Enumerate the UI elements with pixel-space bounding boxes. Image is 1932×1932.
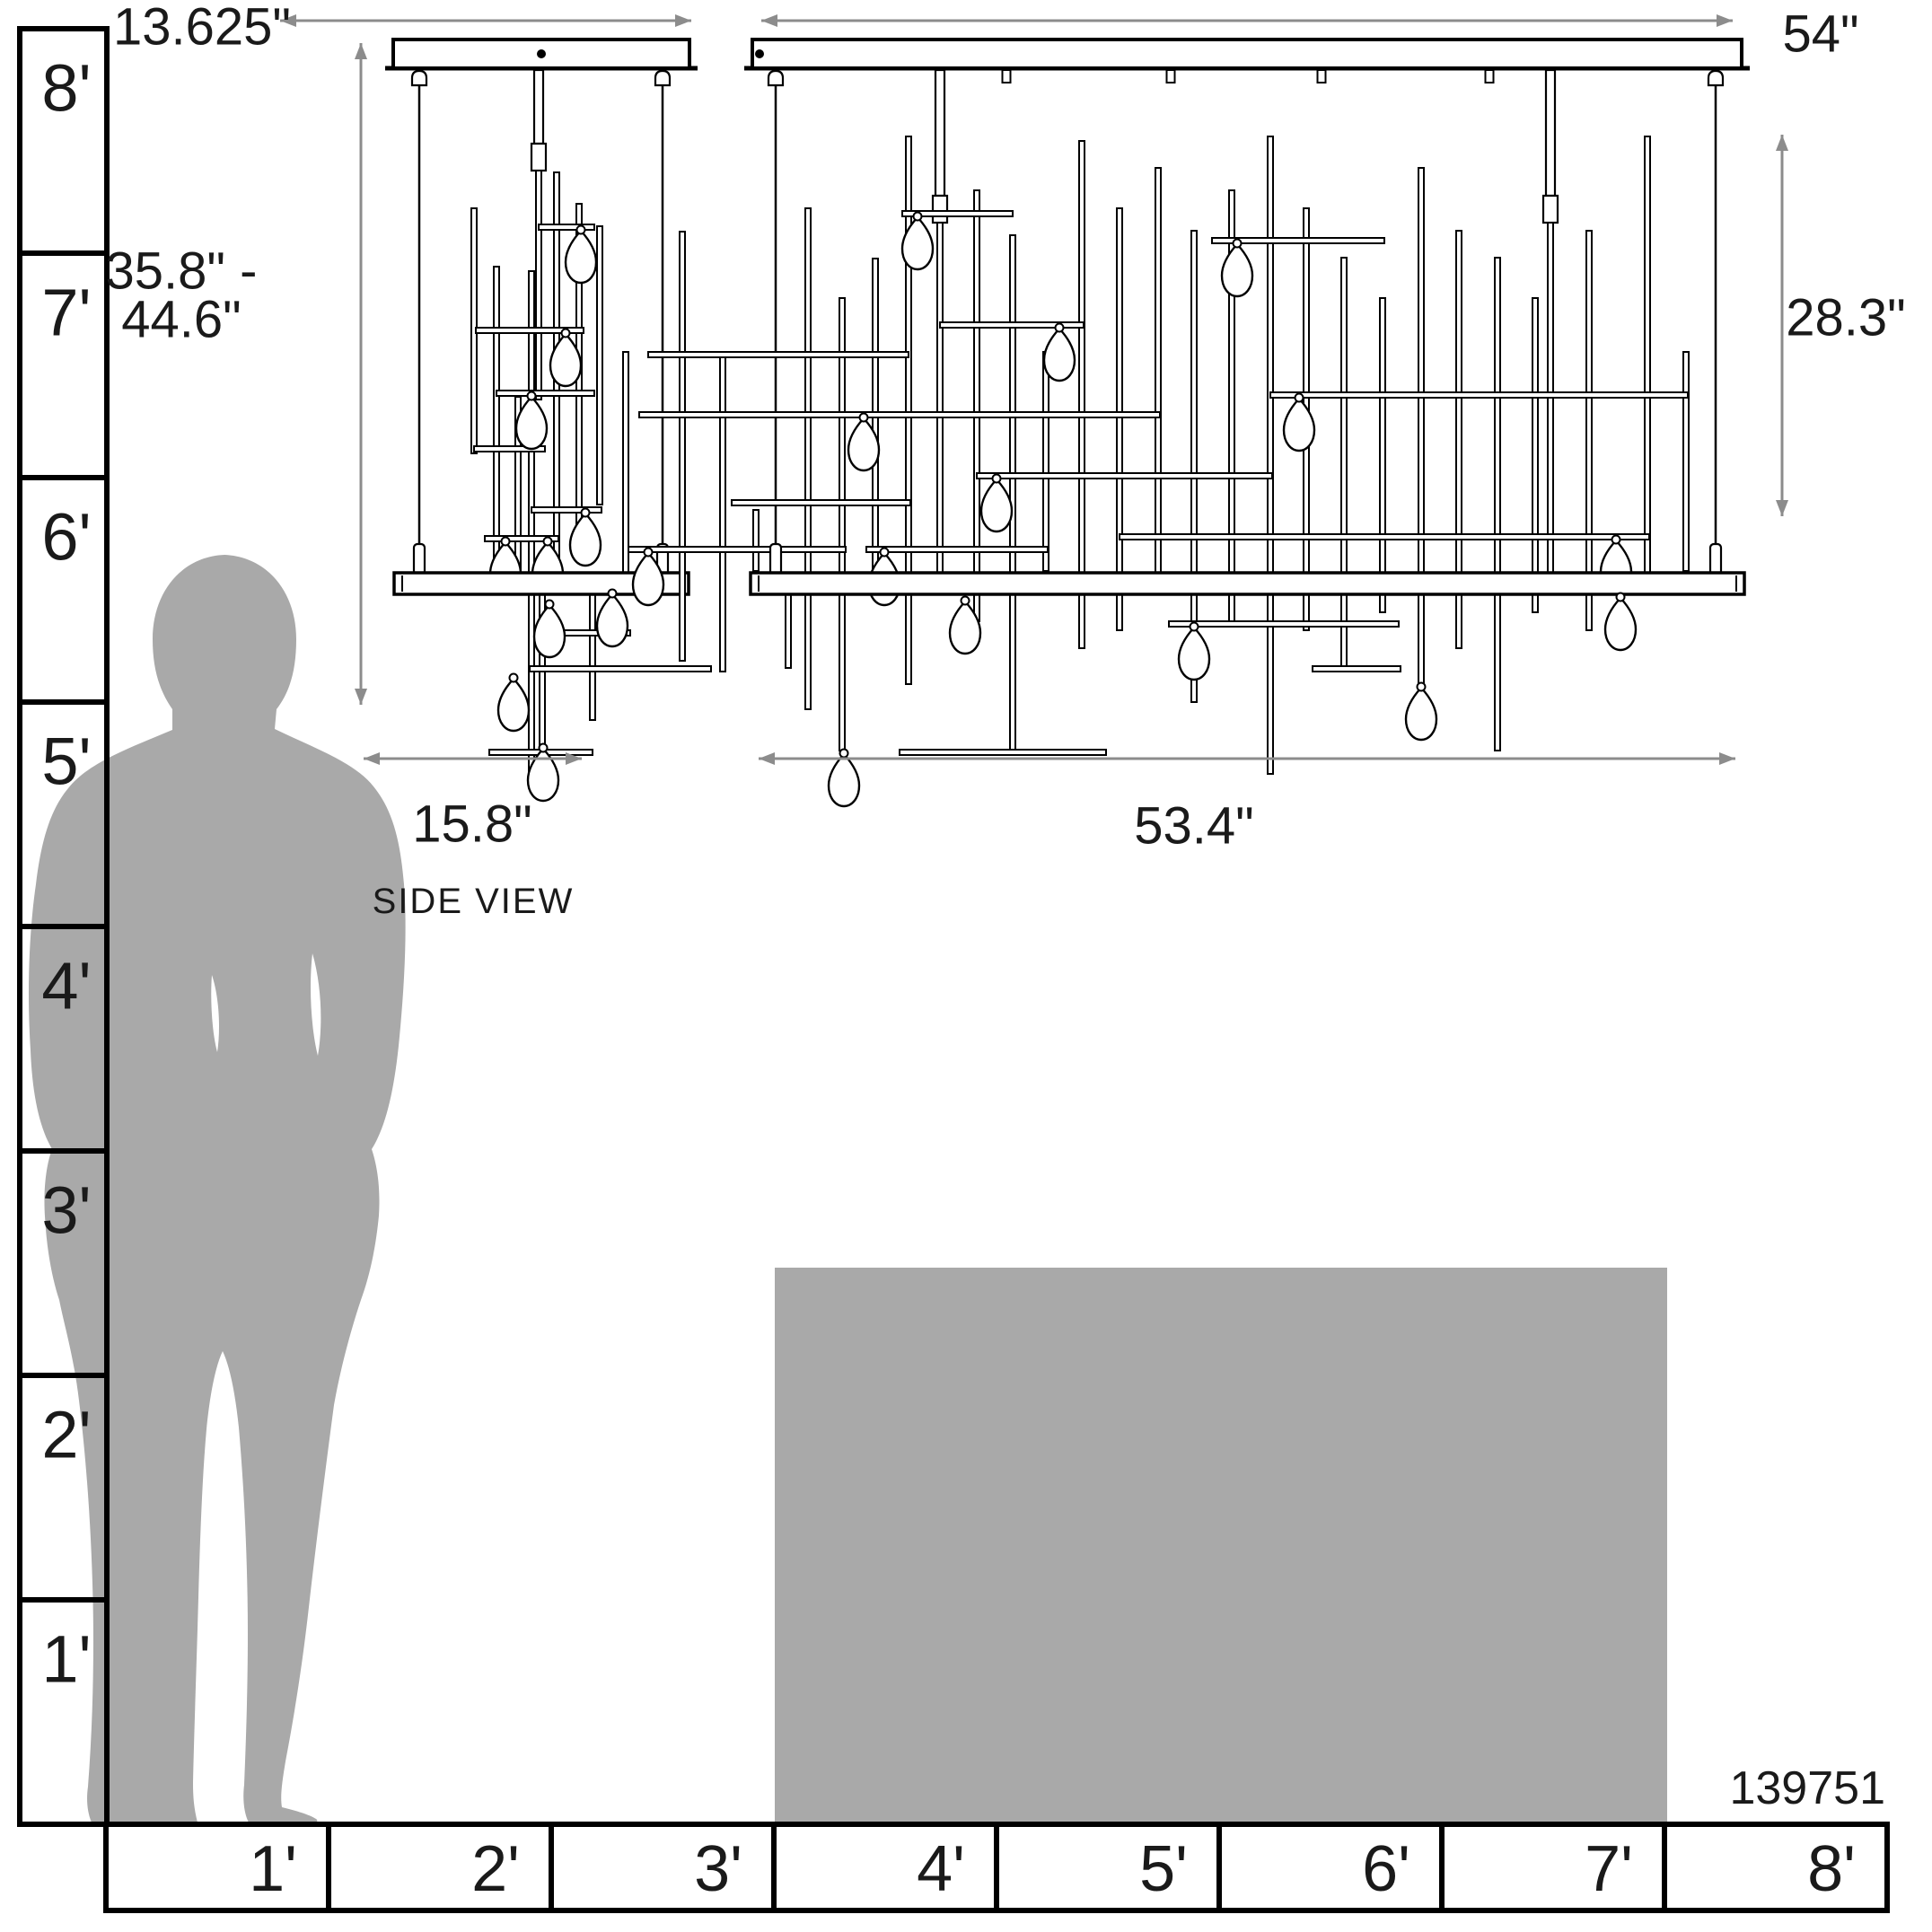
fixture-front-view <box>628 40 1750 806</box>
h-ruler-tick-label: 7' <box>1585 1833 1633 1905</box>
fixture-rod-vertical <box>1495 258 1500 751</box>
v-ruler-tick-label: 6' <box>41 500 91 575</box>
h-ruler-tick-label: 8' <box>1807 1833 1856 1905</box>
canopy-screw-dot <box>755 49 764 58</box>
diagram-canvas: 8'7'6'5'4'3'2'1' 1'2'3'4'5'6'7'8' 13.625… <box>0 0 1932 1932</box>
h-ruler-tick-label: 2' <box>471 1833 520 1905</box>
fixture-rod-vertical <box>786 594 791 668</box>
h-ruler-tick-label: 1' <box>249 1833 297 1905</box>
fixture-rod-vertical <box>1010 235 1015 751</box>
fixture-rod-vertical <box>805 208 811 709</box>
label-body-height: 28.3" <box>1786 289 1905 347</box>
horizontal-ruler: 1'2'3'4'5'6'7'8' <box>106 1824 1887 1910</box>
bulb-icon <box>1406 688 1436 740</box>
fixture-rod-horizontal <box>530 666 711 672</box>
fixture-rod-horizontal <box>732 500 910 505</box>
table-rect <box>775 1268 1667 1824</box>
v-ruler-tick-label: 2' <box>41 1398 91 1472</box>
bulb-icon <box>1222 244 1252 296</box>
fixture-rod-vertical <box>1532 298 1538 612</box>
fixture-rod-vertical <box>753 510 759 571</box>
fixture-rod-vertical <box>873 259 878 585</box>
fixture-rod-horizontal <box>1169 621 1399 627</box>
table-block <box>775 1268 1667 1824</box>
wire-post <box>770 544 781 575</box>
h-ruler-tick-label: 4' <box>917 1833 965 1905</box>
label-canopy-side-width: 13.625" <box>113 0 291 57</box>
fixture-rod-horizontal <box>1313 666 1401 672</box>
fixture-rod-vertical <box>680 232 685 661</box>
wire-post <box>414 544 425 575</box>
scale-diagram: 8'7'6'5'4'3'2'1' 1'2'3'4'5'6'7'8' 13.625… <box>0 0 1932 1932</box>
fixture-rod-horizontal <box>639 412 1160 417</box>
label-side-view-caption: SIDE VIEW <box>373 882 575 921</box>
fixture-rod-vertical <box>1380 298 1385 612</box>
fixture-rod-horizontal <box>1270 392 1688 398</box>
fixture-rod-horizontal <box>628 547 846 552</box>
fixture-rod-vertical <box>494 267 499 573</box>
fixture-rod-horizontal <box>900 750 1106 755</box>
label-front-width: 53.4" <box>1134 797 1253 856</box>
h-ruler-tick-label: 5' <box>1139 1833 1188 1905</box>
fixture-rod-horizontal <box>648 352 909 357</box>
bulb-icon <box>498 679 529 731</box>
ceiling-canopy <box>752 40 1742 68</box>
fixture-rod-vertical <box>720 352 725 672</box>
bulb-icon <box>570 514 601 566</box>
fixture-rod-vertical <box>1117 208 1122 630</box>
stem-coupler <box>531 144 546 171</box>
bulb-icon <box>1179 628 1209 680</box>
fixture-rod-vertical <box>1418 168 1424 684</box>
fixture-side-view <box>385 40 711 801</box>
fixture-rod-horizontal <box>496 391 594 396</box>
bulb-icon <box>566 231 596 283</box>
v-ruler-tick-label: 7' <box>41 276 91 350</box>
canopy-nub <box>1167 70 1175 83</box>
h-ruler-tick-label: 3' <box>694 1833 742 1905</box>
fixture-rod-vertical <box>1268 136 1273 774</box>
bulb-icon <box>1605 598 1636 650</box>
cord-gripper <box>1708 71 1723 85</box>
stem-coupler <box>933 196 947 223</box>
fixture-rod-vertical <box>974 190 979 621</box>
fixture-rod-vertical <box>623 352 628 573</box>
fixture-rod-vertical <box>1043 352 1049 571</box>
h-ruler-tick-label: 6' <box>1362 1833 1410 1905</box>
wire-post <box>1710 544 1721 575</box>
canopy-nub <box>1486 70 1494 83</box>
fixture-rod-vertical <box>529 271 534 774</box>
fixture-rod-vertical <box>1683 352 1689 571</box>
cord-gripper <box>768 71 783 85</box>
label-canopy-front-width: 54" <box>1782 5 1858 64</box>
fixture-bar <box>751 573 1744 594</box>
v-ruler-tick-label: 3' <box>41 1173 91 1248</box>
bulb-icon <box>1044 329 1075 381</box>
fixture-rod-vertical <box>1155 168 1161 594</box>
fixture-rod-vertical <box>597 226 602 505</box>
canopy-nub <box>1003 70 1011 83</box>
bulb-icon <box>829 754 859 806</box>
label-side-width: 15.8" <box>412 795 531 854</box>
canopy-screw-dot <box>537 49 546 58</box>
fixture-rod-horizontal <box>866 547 1048 552</box>
canopy-nub <box>1318 70 1326 83</box>
bulb-icon <box>597 594 628 646</box>
fixture-rod-vertical <box>1586 231 1592 630</box>
fixture-rod-vertical <box>839 298 845 751</box>
fixture-rod-vertical <box>906 136 911 684</box>
v-ruler-tick-label: 8' <box>41 51 91 126</box>
v-ruler-tick-label: 4' <box>41 949 91 1023</box>
v-ruler-tick-label: 1' <box>41 1622 91 1697</box>
fixture-rod-horizontal <box>531 507 602 513</box>
product-id: 139751 <box>1729 1762 1885 1814</box>
fixture-rod-vertical <box>590 594 595 720</box>
label-height-range-line2: 44.6" <box>121 291 241 349</box>
fixture-rod-horizontal <box>539 224 594 230</box>
fixture-rod-horizontal <box>977 473 1272 479</box>
cord-gripper <box>412 71 426 85</box>
fixture-rod-vertical <box>1341 258 1347 666</box>
bulb-icon <box>981 479 1012 531</box>
v-ruler-tick-label: 5' <box>41 724 91 799</box>
stem-coupler <box>1543 196 1558 223</box>
cord-gripper <box>655 71 670 85</box>
fixture-rod-horizontal <box>1120 534 1649 540</box>
fixture-rod-vertical <box>1645 136 1650 594</box>
